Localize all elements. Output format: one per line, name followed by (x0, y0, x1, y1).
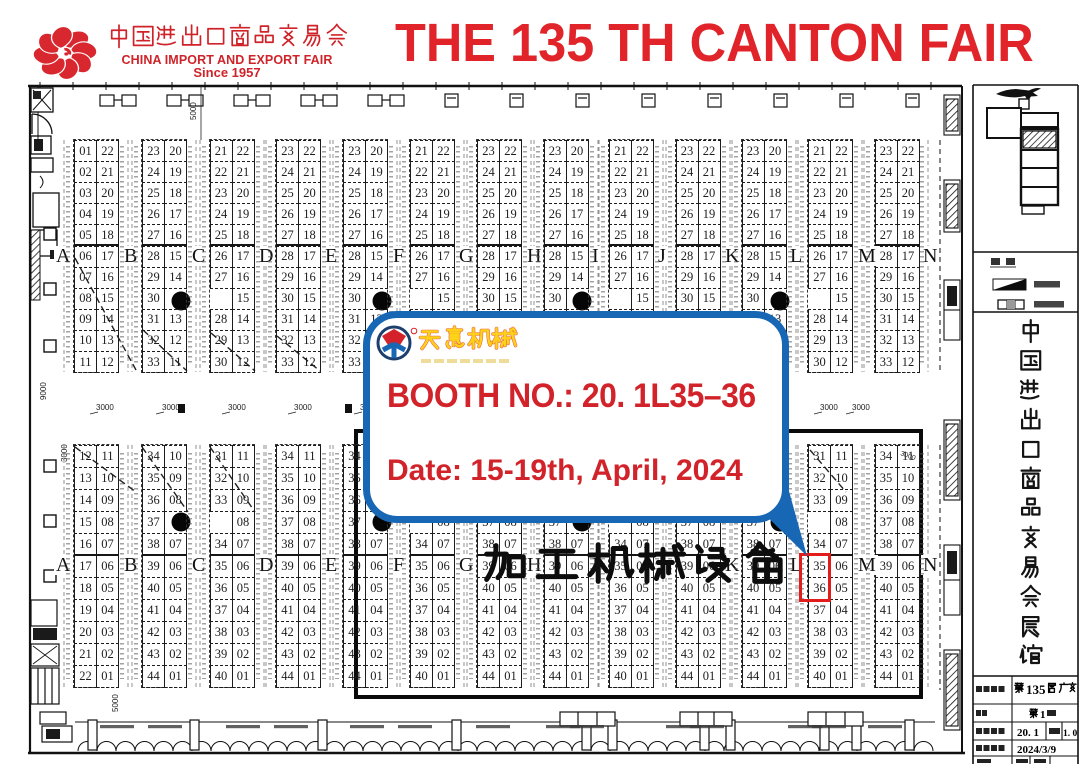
svg-text:3000: 3000 (294, 403, 312, 412)
svg-text:1. 0: 1. 0 (1063, 729, 1078, 739)
svg-text:1: 1 (1040, 709, 1046, 721)
svg-text:5000: 5000 (111, 694, 120, 712)
svg-text:135: 135 (1026, 682, 1046, 697)
svg-text:9000: 9000 (39, 382, 48, 400)
svg-text:3000: 3000 (228, 403, 246, 412)
svg-text:2024/3/9: 2024/3/9 (1017, 744, 1057, 756)
svg-text:3000: 3000 (852, 403, 870, 412)
svg-text:3000: 3000 (820, 403, 838, 412)
svg-text:20. 1: 20. 1 (1017, 727, 1039, 739)
svg-text:5000: 5000 (189, 102, 198, 120)
svg-text:3000: 3000 (96, 403, 114, 412)
svg-text:3000: 3000 (162, 403, 180, 412)
